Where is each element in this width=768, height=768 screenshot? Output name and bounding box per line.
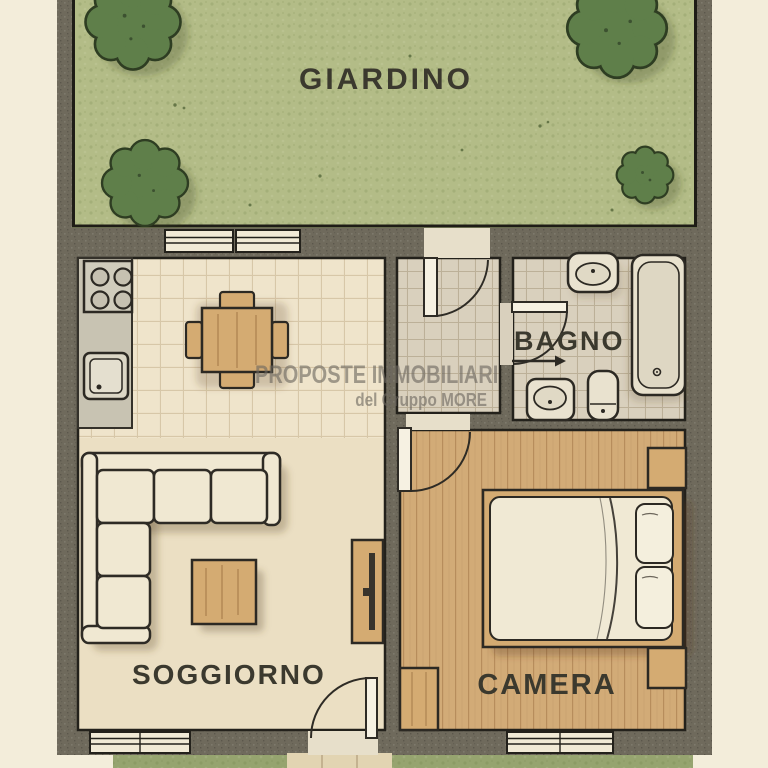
garden-area bbox=[72, 0, 701, 232]
room-label-giardino: GIARDINO bbox=[283, 63, 489, 96]
walkway bbox=[287, 753, 392, 768]
wardrobe bbox=[400, 668, 438, 730]
street-strip bbox=[113, 753, 693, 768]
toilet bbox=[588, 371, 618, 420]
room-label-bagno: BAGNO bbox=[514, 327, 620, 357]
kitchen-window bbox=[165, 230, 300, 252]
coffee-table bbox=[192, 560, 256, 624]
room-label-camera: CAMERA bbox=[477, 670, 617, 702]
tv-icon bbox=[369, 553, 375, 630]
bathtub bbox=[632, 255, 685, 395]
garden-tree bbox=[103, 141, 187, 225]
living-room-window bbox=[90, 732, 190, 753]
kitchen-sink bbox=[84, 353, 128, 399]
tv-cabinet bbox=[352, 540, 383, 643]
pillow bbox=[636, 504, 673, 563]
bedroom-doorway bbox=[406, 414, 470, 430]
garden-tree bbox=[87, 0, 179, 68]
washbasin bbox=[568, 253, 618, 292]
stove bbox=[84, 261, 132, 312]
pillow bbox=[636, 567, 673, 628]
bedroom-window bbox=[507, 732, 613, 753]
nightstand bbox=[648, 448, 686, 488]
garden-tree bbox=[618, 148, 673, 203]
watermark-line2: del Gruppo MORE bbox=[241, 390, 488, 411]
floor-plan: GIARDINO BAGNO SOGGIORNO CAMERA PROPOSTE… bbox=[0, 0, 768, 768]
nightstand bbox=[648, 648, 686, 688]
entrance-threshold bbox=[424, 228, 490, 258]
room-label-soggiorno: SOGGIORNO bbox=[132, 660, 324, 691]
double-bed bbox=[483, 490, 683, 647]
bidet bbox=[527, 379, 574, 420]
watermark-line1: PROPOSTE IMMOBILIARI bbox=[255, 361, 487, 390]
garden-tree bbox=[569, 0, 666, 76]
